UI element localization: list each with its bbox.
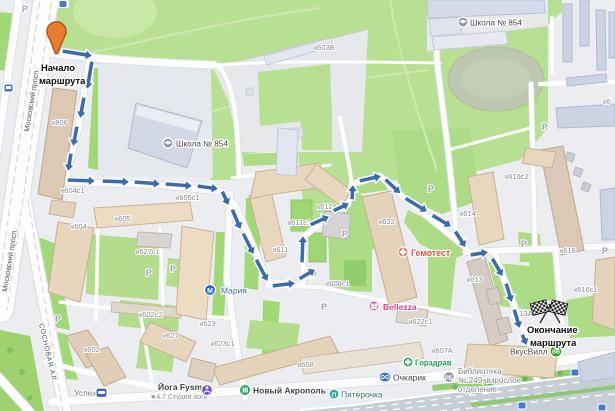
svg-text:маршрута: маршрута [39,75,86,86]
svg-text:к616с2: к616с2 [505,172,529,181]
svg-text:Очкарик: Очкарик [393,373,426,383]
svg-text:к611: к611 [273,245,288,254]
svg-text:Р: Р [342,229,348,239]
svg-text:Гемотест: Гемотест [411,248,451,258]
svg-text:Окончание: Окончание [527,324,578,335]
svg-text:№ 249, взрослое: № 249, взрослое [458,376,522,385]
svg-text:ВкусВилл: ВкусВилл [510,347,548,357]
svg-text:к616с1: к616с1 [574,285,598,294]
svg-text:к603Б: к603Б [314,43,335,52]
svg-text:Новый Акрополь: Новый Акрополь [253,386,326,396]
svg-text:к605: к605 [115,214,131,223]
svg-text:Р: Р [55,314,61,324]
svg-text:★4.7 Студия йоги: ★4.7 Студия йоги [150,393,208,401]
svg-text:к604с1: к604с1 [61,186,85,195]
svg-text:к623с1: к623с1 [211,339,235,348]
svg-text:Р: Р [321,302,327,312]
svg-text:Р: Р [542,122,548,132]
svg-text:к627: к627 [163,331,179,340]
svg-text:к623: к623 [200,319,216,328]
svg-text:к627с1: к627с1 [136,247,160,256]
svg-text:к608с1: к608с1 [326,279,350,288]
svg-text:Пятёрочка: Пятёрочка [341,390,383,400]
svg-text:к622: к622 [379,217,395,226]
svg-text:к622с1: к622с1 [409,317,433,326]
svg-text:Р: Р [602,246,608,256]
svg-text:М: М [207,288,213,295]
svg-text:Мария: Мария [221,286,247,296]
svg-text:Библиотека: Библиотека [458,367,502,376]
svg-text:к611с1: к611с1 [288,218,311,227]
svg-text:Р: Р [22,4,28,14]
svg-text:к614: к614 [460,209,476,218]
svg-text:Р: Р [521,239,527,249]
svg-text:к6: к6 [603,97,610,106]
svg-text:РБ: РБ [445,376,454,382]
svg-text:к616: к616 [560,246,576,255]
svg-text:Р: Р [170,264,176,274]
svg-text:к602: к602 [84,345,100,354]
svg-text:Bellezza: Bellezza [383,302,417,312]
svg-text:к602с2: к602с2 [139,310,163,319]
svg-text:к607А: к607А [432,346,453,355]
svg-text:к613: к613 [467,275,483,284]
svg-text:к806: к806 [52,118,68,127]
svg-text:Начало: Начало [41,62,75,73]
svg-text:маршрута: маршрута [530,337,577,348]
svg-text:к608: к608 [298,360,314,369]
svg-text:к604: к604 [71,222,87,231]
svg-text:Школа № 854: Школа № 854 [176,140,228,149]
svg-text:Р: Р [146,268,152,278]
svg-text:отделение: отделение [458,385,498,394]
svg-text:ВВ: ВВ [552,350,560,356]
svg-text:П: П [332,392,337,399]
svg-text:Горздрав: Горздрав [415,359,452,368]
svg-text:Школа № 854: Школа № 854 [470,19,522,28]
svg-text:Йога Fysm: Йога Fysm [158,381,203,392]
svg-text:Р: Р [428,184,434,194]
svg-text:Успех: Успех [74,388,97,398]
svg-text:к605с1: к605с1 [176,193,200,202]
